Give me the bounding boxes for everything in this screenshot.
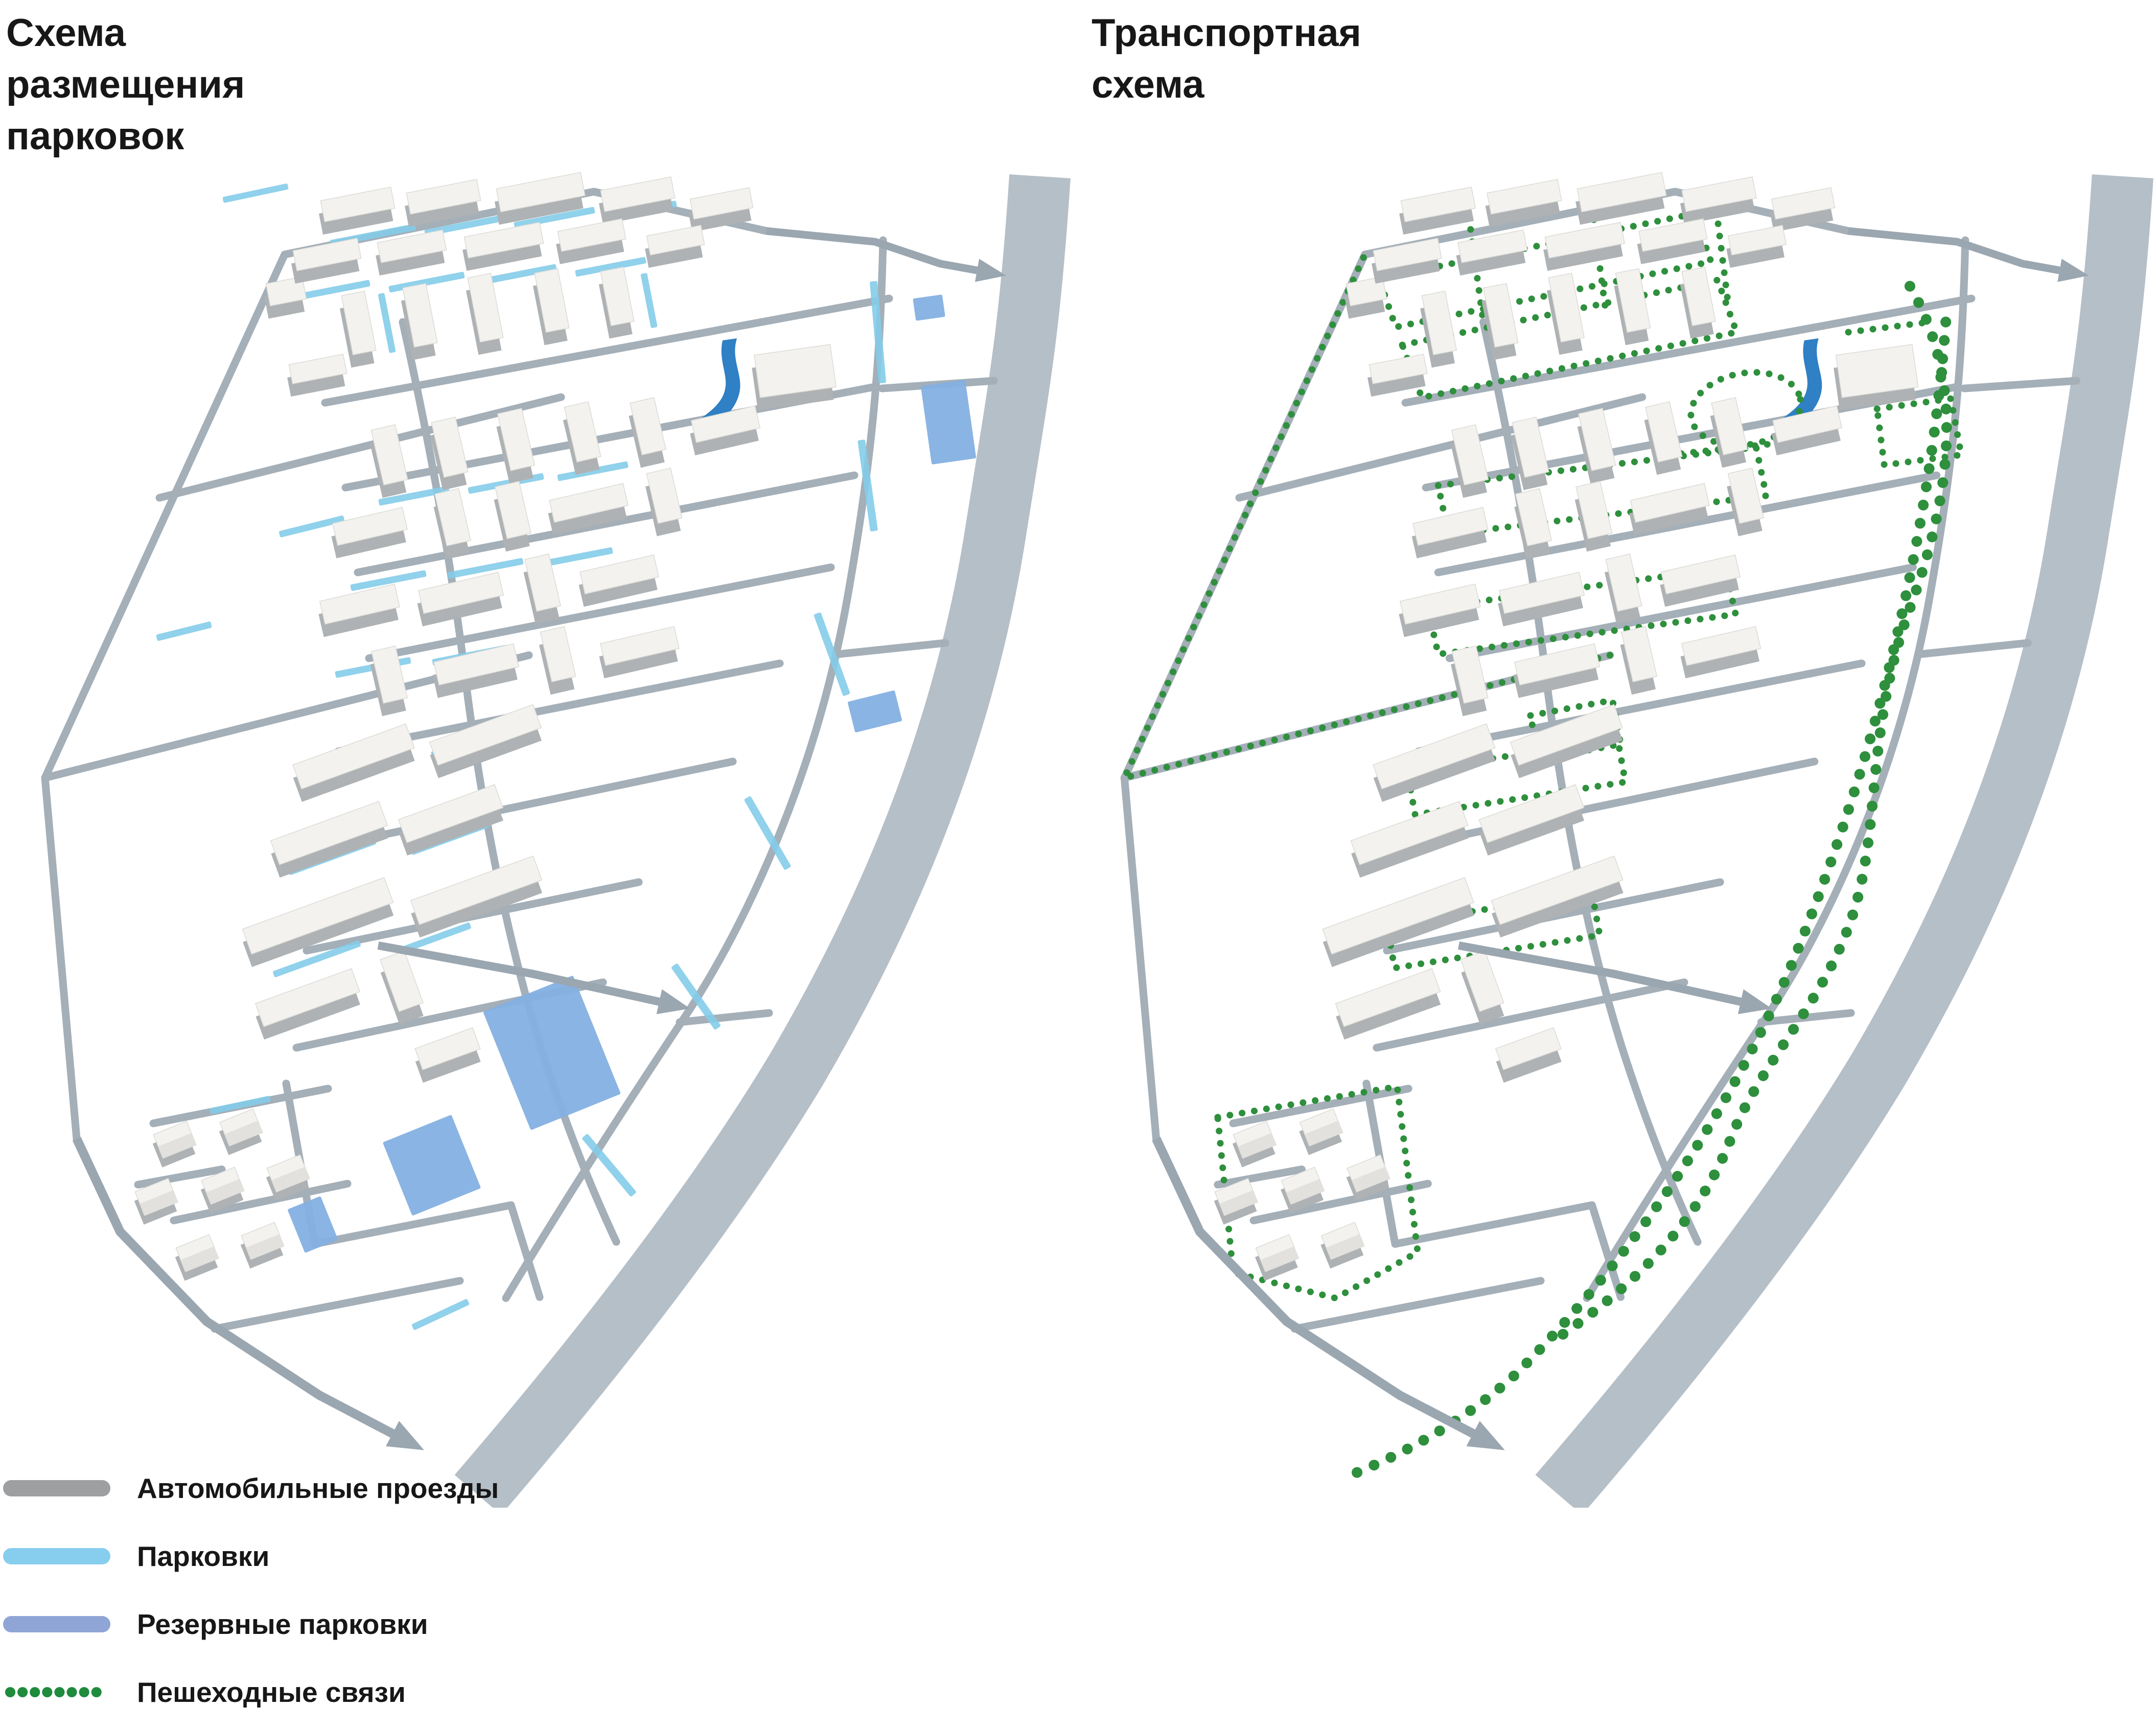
building [1369, 724, 1499, 802]
legend-label: Автомобильные проезды [137, 1472, 499, 1505]
parking-scheme-map [0, 169, 1073, 1508]
building [463, 273, 505, 355]
building [530, 269, 571, 345]
transport-scheme-title: Транспортная схема [1092, 7, 1361, 110]
legend-row-pedestrian-links: Пешеходные связи [3, 1658, 499, 1726]
building [576, 555, 661, 607]
building [239, 878, 398, 967]
building [554, 219, 629, 264]
building [596, 177, 677, 224]
building [367, 646, 410, 716]
building [407, 856, 546, 937]
building [1678, 267, 1718, 339]
building [262, 277, 309, 319]
building [1572, 481, 1615, 551]
building [329, 508, 410, 559]
cottage-building [1252, 1235, 1302, 1281]
legend-row-car-driveways: Автомобильные проезды [3, 1454, 499, 1522]
transport-scheme-diagram [1079, 169, 2156, 1508]
building [1506, 705, 1627, 778]
building [596, 627, 682, 678]
building [285, 354, 350, 397]
legend-label: Парковки [137, 1540, 269, 1573]
building [494, 408, 538, 483]
building [1448, 646, 1491, 716]
building [1678, 627, 1764, 678]
cottage-building [172, 1235, 222, 1281]
legend-row-parkings: Парковки [3, 1522, 499, 1590]
cottage-building [150, 1121, 199, 1167]
building [1541, 222, 1627, 271]
cottage-building [1230, 1121, 1279, 1167]
building [1319, 878, 1478, 967]
legend-label: Пешеходные связи [137, 1676, 406, 1709]
transport-scheme-map [1079, 169, 2156, 1508]
building [1574, 408, 1618, 483]
legend-label: Резервные парковки [137, 1608, 428, 1641]
building [1617, 627, 1660, 695]
cottage-building [238, 1222, 287, 1268]
building [1488, 856, 1627, 937]
parking-scheme-diagram [0, 169, 1073, 1508]
page: { "titles": { "left": "Схема\nразмещения… [0, 0, 2156, 1730]
building [1409, 508, 1491, 559]
building [1369, 238, 1444, 284]
building [267, 801, 391, 878]
building [1724, 225, 1789, 268]
building [1397, 187, 1477, 235]
building [377, 951, 428, 1025]
building [537, 627, 578, 695]
building [1832, 344, 1920, 410]
building [1332, 968, 1445, 1040]
building [316, 187, 397, 235]
building [431, 489, 473, 559]
building [596, 267, 636, 339]
parking-scheme-title: Схема размещения парковок [6, 7, 245, 162]
building [1342, 277, 1389, 319]
building [750, 344, 838, 410]
cottage-building [216, 1109, 266, 1155]
building [521, 554, 563, 624]
cottage-building [1317, 1222, 1367, 1268]
building [1347, 801, 1472, 878]
building [426, 705, 545, 778]
building [491, 481, 534, 551]
parkings-line-icon [3, 1547, 110, 1565]
building [1678, 177, 1758, 224]
reserve-parkings-line-icon [3, 1615, 110, 1633]
bottom-street-arrow [1467, 1421, 1505, 1450]
building [1769, 406, 1844, 455]
building [460, 222, 546, 271]
building [1492, 1028, 1565, 1083]
building [1511, 644, 1603, 698]
building [251, 968, 364, 1040]
cottage-building [1296, 1109, 1346, 1155]
building [1573, 172, 1669, 224]
legend: Автомобильные проезды Парковки Резервные… [3, 1454, 499, 1726]
building [1396, 584, 1483, 637]
building [289, 724, 419, 802]
building [687, 406, 763, 455]
legend-row-reserve-parkings: Резервные парковки [3, 1590, 499, 1658]
building [643, 468, 685, 536]
car-driveways-line-icon [3, 1479, 110, 1497]
bottom-street-arrow [386, 1421, 424, 1450]
building [1457, 951, 1508, 1025]
pedestrian-links-line-icon [3, 1683, 110, 1701]
building [289, 238, 364, 284]
building [411, 1028, 485, 1083]
building [1612, 269, 1653, 345]
building [643, 225, 707, 268]
building [316, 584, 403, 637]
building [1602, 554, 1645, 624]
